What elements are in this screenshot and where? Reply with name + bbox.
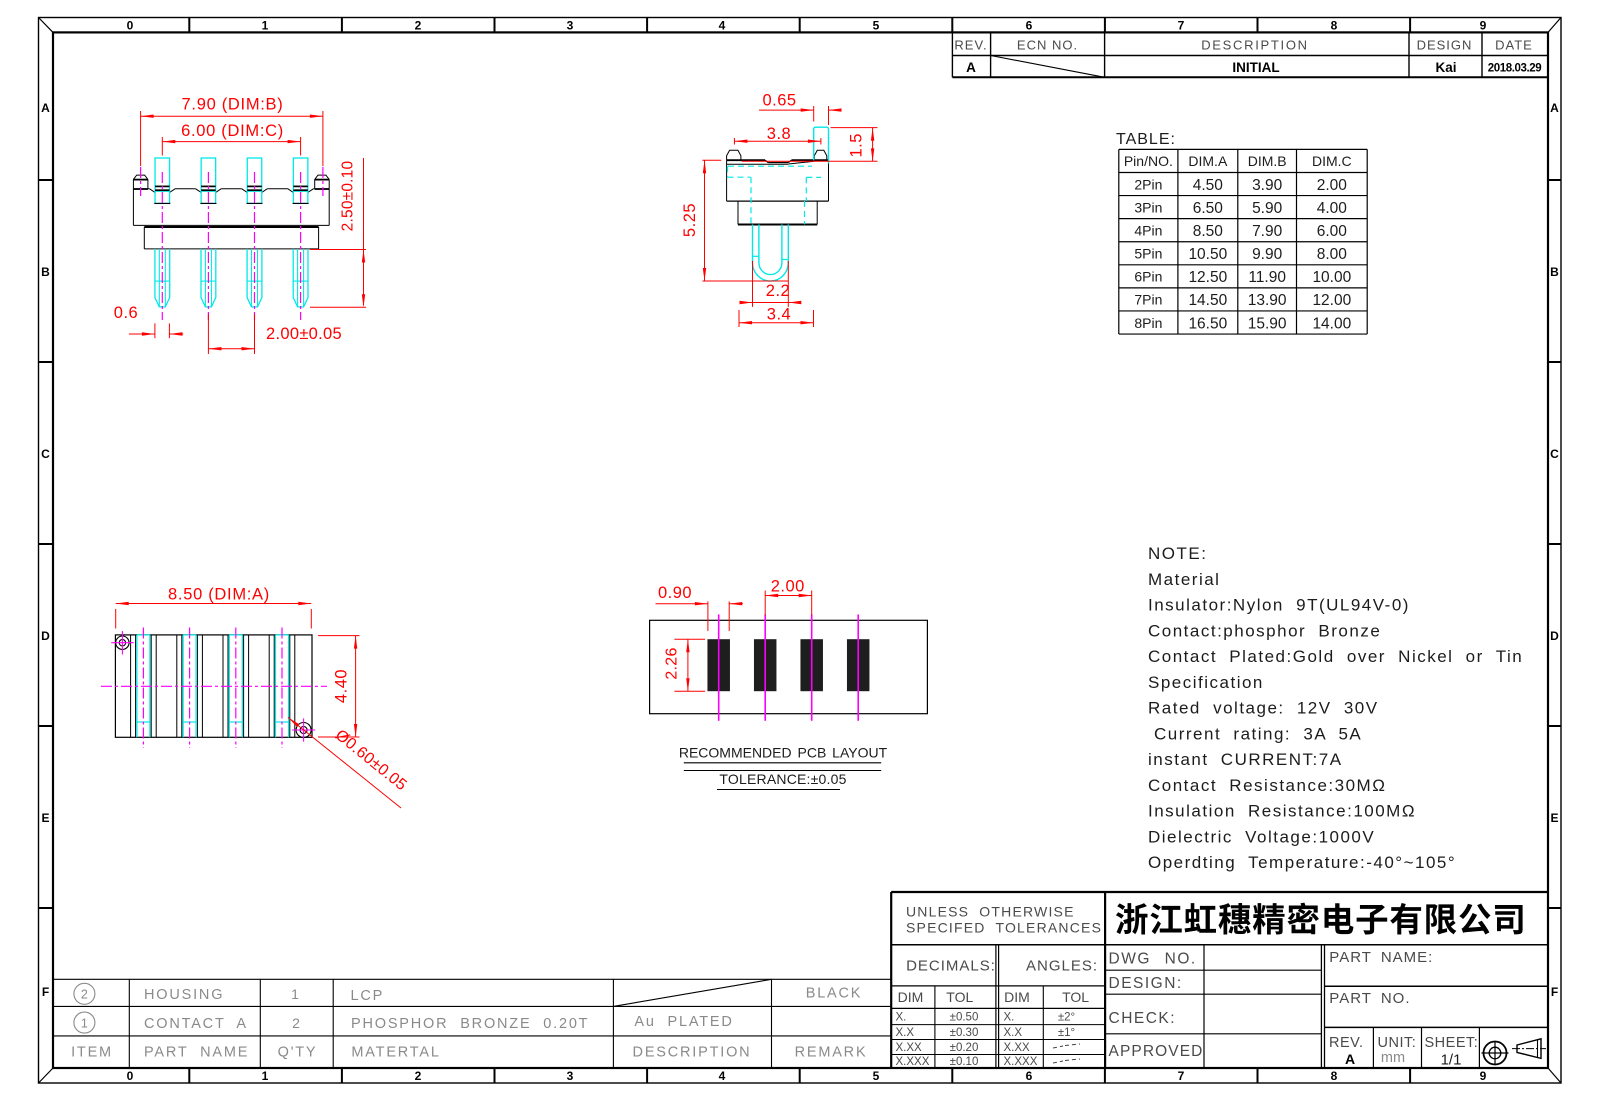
svg-text:MATERTAL: MATERTAL [351, 1045, 440, 1061]
svg-text:PART NAME:: PART NAME: [1329, 949, 1433, 966]
svg-text:F: F [42, 985, 49, 999]
svg-text:1: 1 [291, 986, 299, 1002]
svg-text:CONTACT A: CONTACT A [144, 1016, 248, 1032]
svg-text:DIM.B: DIM.B [1248, 153, 1287, 169]
svg-text:B: B [1550, 265, 1559, 279]
svg-text:0.65: 0.65 [762, 91, 796, 109]
svg-text:3.4: 3.4 [767, 306, 791, 324]
svg-text:X.XXX: X.XXX [896, 1056, 930, 1068]
svg-text:10.50: 10.50 [1188, 246, 1227, 263]
svg-text:CHECK:: CHECK: [1109, 1010, 1177, 1027]
svg-text:7Pin: 7Pin [1134, 292, 1162, 308]
svg-text:X.X: X.X [1004, 1027, 1023, 1039]
svg-text:8Pin: 8Pin [1134, 315, 1162, 331]
svg-text:6.00 (DIM:C): 6.00 (DIM:C) [181, 122, 284, 140]
svg-text:DATE: DATE [1495, 38, 1533, 53]
svg-text:D: D [1550, 629, 1559, 643]
svg-text:2: 2 [415, 19, 422, 33]
svg-text:REV.: REV. [1329, 1035, 1364, 1051]
svg-text:3.8: 3.8 [767, 125, 791, 143]
svg-text:Current rating: 3A 5A: Current rating: 3A 5A [1154, 724, 1362, 743]
svg-text:Q'TY: Q'TY [278, 1045, 318, 1061]
svg-text:5: 5 [873, 1069, 880, 1083]
svg-text:±0.10: ±0.10 [950, 1056, 979, 1068]
svg-text:8.50: 8.50 [1193, 223, 1224, 240]
svg-text:0.6: 0.6 [114, 304, 138, 322]
svg-text:APPROVED: APPROVED [1109, 1043, 1204, 1060]
svg-text:PART NAME: PART NAME [144, 1045, 249, 1061]
svg-text:Material: Material [1148, 570, 1220, 589]
svg-text:2.00: 2.00 [1317, 177, 1348, 194]
svg-text:8: 8 [1331, 1069, 1338, 1083]
svg-text:5.25: 5.25 [681, 203, 699, 237]
svg-text:2.00±0.05: 2.00±0.05 [266, 325, 342, 343]
svg-text:Contact:phosphor Bronze: Contact:phosphor Bronze [1148, 621, 1381, 640]
svg-text:Au PLATED: Au PLATED [634, 1014, 733, 1030]
svg-text:6: 6 [1026, 1069, 1033, 1083]
svg-text:mm: mm [1381, 1050, 1405, 1066]
svg-text:3.90: 3.90 [1252, 177, 1283, 194]
svg-text:2: 2 [81, 988, 88, 1002]
svg-text:2.00: 2.00 [771, 578, 805, 596]
svg-text:3Pin: 3Pin [1134, 199, 1162, 215]
svg-text:DIM.A: DIM.A [1188, 153, 1228, 169]
svg-text:Kai: Kai [1435, 60, 1456, 75]
svg-text:DIM.C: DIM.C [1312, 153, 1352, 169]
svg-text:7: 7 [1178, 19, 1185, 33]
svg-text:1: 1 [81, 1016, 88, 1030]
svg-text:±1°: ±1° [1058, 1027, 1075, 1039]
svg-text:2.50±0.10: 2.50±0.10 [340, 161, 357, 232]
svg-text:TOL: TOL [1062, 989, 1089, 1005]
svg-text:4: 4 [719, 19, 726, 33]
svg-text:SHEET:: SHEET: [1425, 1035, 1479, 1051]
svg-text:D: D [41, 629, 50, 643]
svg-text:14.00: 14.00 [1312, 315, 1351, 332]
svg-text:±2°: ±2° [1058, 1012, 1075, 1024]
svg-text:ANGLES:: ANGLES: [1026, 958, 1098, 975]
svg-text:8.00: 8.00 [1317, 246, 1348, 263]
svg-text:4: 4 [719, 1069, 726, 1083]
svg-text:12.00: 12.00 [1312, 292, 1351, 309]
svg-text:2.26: 2.26 [664, 647, 681, 679]
svg-text:1/1: 1/1 [1441, 1052, 1462, 1069]
svg-text:0: 0 [127, 19, 134, 33]
svg-text:2.2: 2.2 [766, 282, 790, 300]
svg-text:SPECIFED TOLERANCES: SPECIFED TOLERANCES [906, 920, 1102, 936]
svg-text:DIM: DIM [898, 989, 924, 1005]
svg-text:4.50: 4.50 [1193, 177, 1224, 194]
svg-text:5Pin: 5Pin [1134, 246, 1162, 262]
svg-text:DESIGN:: DESIGN: [1109, 975, 1183, 992]
svg-text:6.00: 6.00 [1317, 223, 1348, 240]
svg-text:3: 3 [567, 19, 574, 33]
svg-text:0.90: 0.90 [658, 584, 692, 602]
svg-text:E: E [41, 811, 49, 825]
svg-text:1: 1 [262, 19, 269, 33]
svg-text:UNLESS OTHERWISE: UNLESS OTHERWISE [906, 904, 1075, 920]
svg-text:16.50: 16.50 [1188, 315, 1227, 332]
svg-text:INITIAL: INITIAL [1232, 60, 1279, 75]
svg-text:4.00: 4.00 [1317, 200, 1348, 217]
svg-text:instant CURRENT:7A: instant CURRENT:7A [1148, 750, 1343, 769]
svg-text:1: 1 [262, 1069, 269, 1083]
svg-text:2Pin: 2Pin [1134, 176, 1162, 192]
svg-text:Dielectric Voltage:1000V: Dielectric Voltage:1000V [1148, 827, 1375, 846]
svg-text:X.: X. [1004, 1012, 1015, 1024]
svg-text:5.90: 5.90 [1252, 200, 1283, 217]
svg-text:6.50: 6.50 [1193, 200, 1224, 217]
svg-text:2018.03.29: 2018.03.29 [1488, 63, 1542, 75]
svg-text:C: C [1550, 447, 1559, 461]
svg-text:0: 0 [127, 1069, 134, 1083]
svg-text:TOLERANCE:±0.05: TOLERANCE:±0.05 [719, 771, 846, 787]
svg-text:DESCRIPTION: DESCRIPTION [1201, 38, 1309, 53]
svg-text:F: F [1551, 985, 1558, 999]
svg-text:14.50: 14.50 [1188, 292, 1227, 309]
svg-text:10.00: 10.00 [1312, 269, 1351, 286]
svg-text:4.40: 4.40 [333, 669, 351, 703]
svg-text:DESCRIPTION: DESCRIPTION [633, 1045, 752, 1061]
svg-text:DESIGN: DESIGN [1417, 38, 1473, 53]
svg-text:REV.: REV. [954, 38, 987, 53]
svg-text:C: C [41, 447, 50, 461]
svg-text:±0.50: ±0.50 [950, 1012, 979, 1024]
svg-text:X.X: X.X [896, 1027, 915, 1039]
svg-text:LCP: LCP [351, 988, 385, 1004]
svg-text:ITEM: ITEM [71, 1045, 113, 1061]
svg-text:2: 2 [292, 1015, 300, 1031]
svg-text:±0.30: ±0.30 [950, 1027, 979, 1039]
svg-text:NOTE:: NOTE: [1148, 544, 1207, 563]
svg-text:Operdting Temperature:-40°~105: Operdting Temperature:-40°~105° [1148, 853, 1456, 872]
svg-text:Rated voltage: 12V 30V: Rated voltage: 12V 30V [1148, 699, 1379, 718]
svg-text:Contact Resistance:30MΩ: Contact Resistance:30MΩ [1148, 776, 1386, 795]
svg-text:X.: X. [896, 1012, 907, 1024]
svg-text:8: 8 [1331, 19, 1338, 33]
svg-text:ECN NO.: ECN NO. [1017, 38, 1078, 53]
svg-text:DECIMALS:: DECIMALS: [906, 958, 996, 975]
svg-text:12.50: 12.50 [1188, 269, 1227, 286]
svg-text:13.90: 13.90 [1248, 292, 1287, 309]
svg-text:PHOSPHOR BRONZE 0.20T: PHOSPHOR BRONZE 0.20T [351, 1016, 589, 1032]
svg-text:TOL: TOL [946, 989, 973, 1005]
svg-text:±0.20: ±0.20 [950, 1042, 979, 1054]
svg-text:Pin/NO.: Pin/NO. [1124, 153, 1173, 169]
svg-text:7: 7 [1178, 1069, 1185, 1083]
svg-text:UNIT:: UNIT: [1378, 1035, 1417, 1051]
svg-text:Specification: Specification [1148, 673, 1264, 692]
svg-text:9: 9 [1480, 1069, 1487, 1083]
svg-text:PART NO.: PART NO. [1329, 990, 1410, 1007]
svg-text:6: 6 [1026, 19, 1033, 33]
svg-text:Insulation Resistance:100MΩ: Insulation Resistance:100MΩ [1148, 802, 1416, 821]
svg-text:9: 9 [1480, 19, 1487, 33]
svg-text:DIM: DIM [1004, 989, 1030, 1005]
svg-text:5: 5 [873, 19, 880, 33]
svg-text:RECOMMENDED PCB LAYOUT: RECOMMENDED PCB LAYOUT [679, 745, 888, 761]
svg-text:Insulator:Nylon 9T(UL94V-0): Insulator:Nylon 9T(UL94V-0) [1148, 596, 1410, 615]
svg-text:4Pin: 4Pin [1134, 222, 1162, 238]
svg-text:X.XX: X.XX [896, 1042, 923, 1054]
svg-text:A: A [966, 60, 976, 75]
svg-text:X.XX: X.XX [1004, 1042, 1031, 1054]
svg-text:DWG NO.: DWG NO. [1109, 951, 1197, 968]
svg-text:9.90: 9.90 [1252, 246, 1283, 263]
svg-text:E: E [1550, 811, 1558, 825]
svg-text:7.90 (DIM:B): 7.90 (DIM:B) [182, 96, 284, 114]
svg-text:TABLE:: TABLE: [1116, 131, 1176, 148]
svg-text:Contact Plated:Gold over Nicke: Contact Plated:Gold over Nickel or Tin [1148, 647, 1523, 666]
svg-text:HOUSING: HOUSING [144, 987, 224, 1003]
svg-text:REMARK: REMARK [795, 1045, 868, 1061]
svg-text:2: 2 [415, 1069, 422, 1083]
svg-text:8.50 (DIM:A): 8.50 (DIM:A) [168, 586, 270, 604]
svg-text:X.XXX: X.XXX [1004, 1056, 1038, 1068]
svg-text:B: B [41, 265, 50, 279]
svg-text:A: A [1550, 101, 1559, 115]
svg-text:15.90: 15.90 [1248, 315, 1287, 332]
svg-text:6Pin: 6Pin [1134, 269, 1162, 285]
svg-text:BLACK: BLACK [806, 986, 863, 1002]
svg-text:A: A [41, 101, 50, 115]
svg-text:3: 3 [567, 1069, 574, 1083]
svg-text:7.90: 7.90 [1252, 223, 1283, 240]
svg-text:11.90: 11.90 [1248, 269, 1286, 286]
svg-text:A: A [1345, 1051, 1355, 1067]
svg-text:1.5: 1.5 [848, 133, 866, 157]
